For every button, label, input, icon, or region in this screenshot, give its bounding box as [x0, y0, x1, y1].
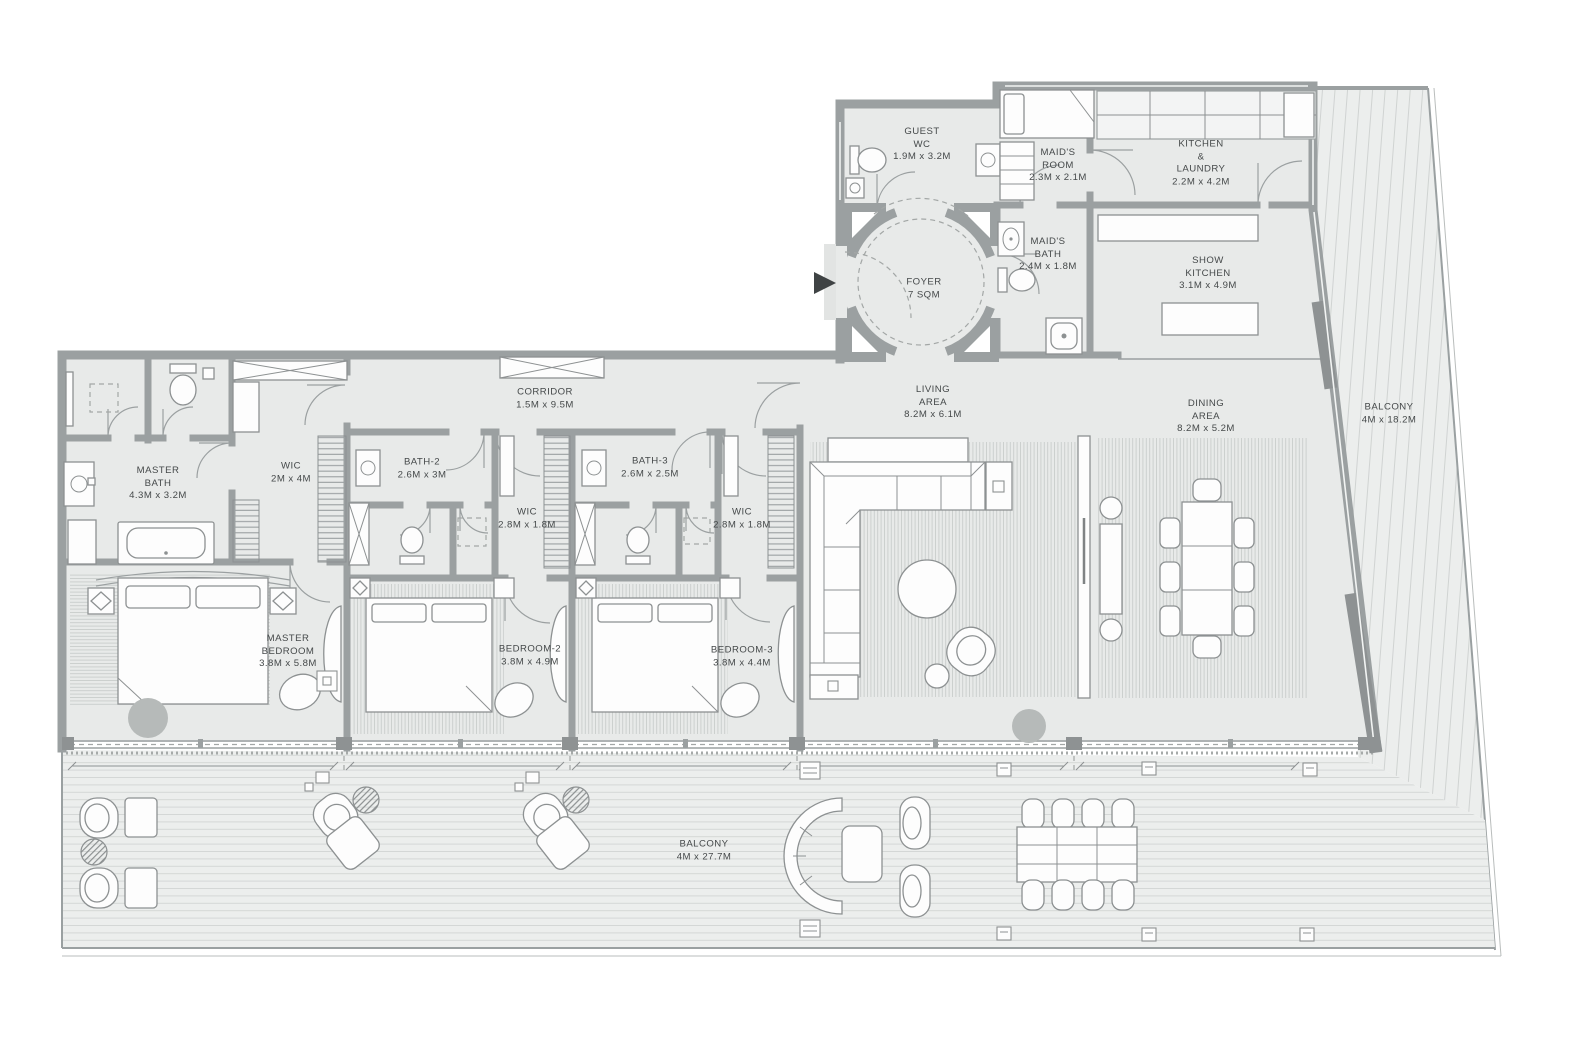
floor-plan-drawing: [0, 0, 1580, 1053]
master-pouf: [128, 698, 168, 738]
dining-table: [1182, 502, 1232, 635]
foyer-rotunda: [824, 198, 1001, 366]
balcony-bottom-deck: [62, 748, 1501, 956]
floor-plan: GUEST WC 1.9M x 3.2M MAID'S ROOM 2.3M x …: [0, 0, 1580, 1053]
kitchen-laundry-fixtures: [1097, 91, 1316, 139]
living-pouf: [1012, 709, 1046, 743]
